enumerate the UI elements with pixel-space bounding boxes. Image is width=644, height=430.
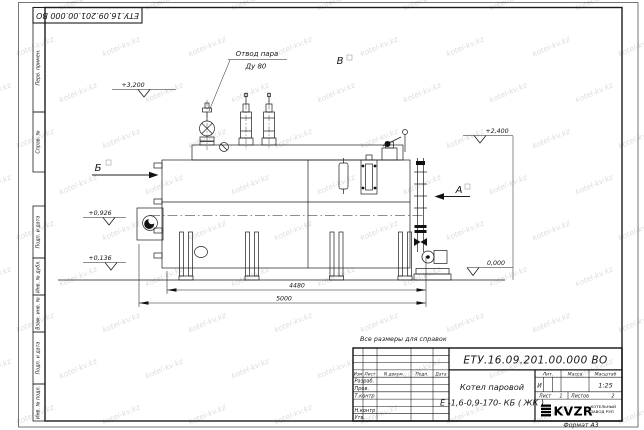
margin-label-podp-data-2: Подп. и дата [36, 342, 42, 375]
dimension-text-5000: 5000 [276, 296, 292, 303]
product-name-line2: Е -1,6-0,9-170- КБ ( ЖК ) [440, 398, 544, 408]
elevation-mark-0926 [83, 218, 126, 226]
feed-pipe-and-pump [414, 158, 451, 280]
elevation-mark-3200 [112, 90, 176, 98]
elevation-text-2400: +2,400 [485, 128, 508, 135]
col-izm: Изм [354, 371, 363, 377]
view-label-v: В [337, 56, 344, 67]
format-label: Формат А3 [563, 422, 598, 429]
dimension-text-4480: 4480 [289, 283, 305, 290]
section-arrow-b [92, 172, 159, 178]
product-name-line1: Котел паровой [460, 382, 525, 392]
title-block-texts: Все размеры для справок ЕТУ.16.09.201.00… [354, 335, 617, 429]
margin-label-podp-data-1: Подп. и дата [36, 216, 42, 249]
position-callout-balloon [195, 247, 208, 258]
margin-texts: ЕТУ.16.09.201.00.000 ВО Перв. примен. Сп… [36, 11, 139, 419]
col-podp: Подп. [415, 371, 428, 377]
lit-value: И [537, 383, 542, 390]
section-label-b: Б [95, 163, 102, 174]
boiler-body [150, 143, 424, 269]
burner [137, 208, 163, 240]
steam-callout-line1: Отвод пара [236, 50, 279, 58]
elevation-mark-2400 [463, 136, 513, 144]
row-tkontr: Т.контр [355, 393, 375, 399]
elevation-text-3200: +3,200 [121, 82, 144, 89]
steam-callout-line2: Ду 80 [245, 63, 267, 71]
margin-label-perv-primen: Перв. примен. [36, 49, 42, 85]
steam-outlet-valve [200, 100, 215, 150]
company-logo-text: KVZR [554, 404, 593, 419]
boiler-drawing [58, 92, 505, 280]
sheets-value: 2 [611, 393, 614, 399]
safety-valve-2 [262, 92, 276, 150]
company-caption-line2: ЗАВОД РЭП [591, 409, 614, 414]
sheet-value: 1 [559, 393, 562, 399]
drawing-sheet: kotel-kv.kzkotel-kv.kzkotel-kv.kzkotel-k… [0, 0, 644, 430]
row-utv: Утв. [355, 415, 366, 421]
section-a-index-box [465, 184, 470, 189]
section-arrow-a [435, 193, 471, 199]
section-label-a: А [455, 185, 463, 196]
row-prov: Пров. [355, 386, 370, 392]
drawing-svg: ЕТУ.16.09.201.00.000 ВО Перв. примен. Сп… [0, 0, 644, 430]
safety-valve-1 [239, 92, 253, 150]
pump-motor [434, 251, 447, 264]
title-doc-number: ЕТУ.16.09.201.00.000 ВО [463, 355, 607, 367]
elevation-text-0926: +0,926 [88, 210, 111, 217]
margin-label-vzam-inv: Взам. инв. № [36, 297, 42, 330]
col-ndoc: N докум. [384, 371, 404, 377]
row-nkontr: Н.контр [355, 408, 376, 414]
margin-label-inv-podl: Инв. № подл. [36, 386, 42, 419]
reference-note: Все размеры для справок [360, 335, 447, 343]
elevation-mark-0136 [83, 263, 126, 271]
section-b-index-box [106, 160, 111, 165]
elevation-mark-0000 [467, 268, 513, 276]
elevation-text-0000: 0,000 [487, 260, 505, 267]
view-v-index-box [347, 55, 352, 60]
col-data: Дата [434, 371, 446, 377]
water-level-gauges [339, 155, 377, 194]
mass-label: Масса [568, 371, 583, 377]
margin-label-sprav-n: Справ. № [36, 130, 42, 153]
support-legs [179, 232, 412, 280]
margin-label-inv-dubl: Инв. № дубл. [36, 260, 42, 293]
sheets-label: Листов [570, 393, 589, 399]
annotation-lines [83, 55, 513, 307]
corner-stamp-text: ЕТУ.16.09.201.00.000 ВО [36, 11, 139, 20]
scale-value: 1:25 [598, 382, 613, 390]
row-razrab: Разраб. [355, 379, 375, 385]
elevation-text-0136: +0,136 [88, 255, 111, 262]
sheet-label: Лист [538, 393, 551, 399]
lit-label: Лит. [542, 371, 554, 377]
scale-label: Масштаб [595, 371, 617, 377]
col-list: Лист [364, 371, 376, 377]
